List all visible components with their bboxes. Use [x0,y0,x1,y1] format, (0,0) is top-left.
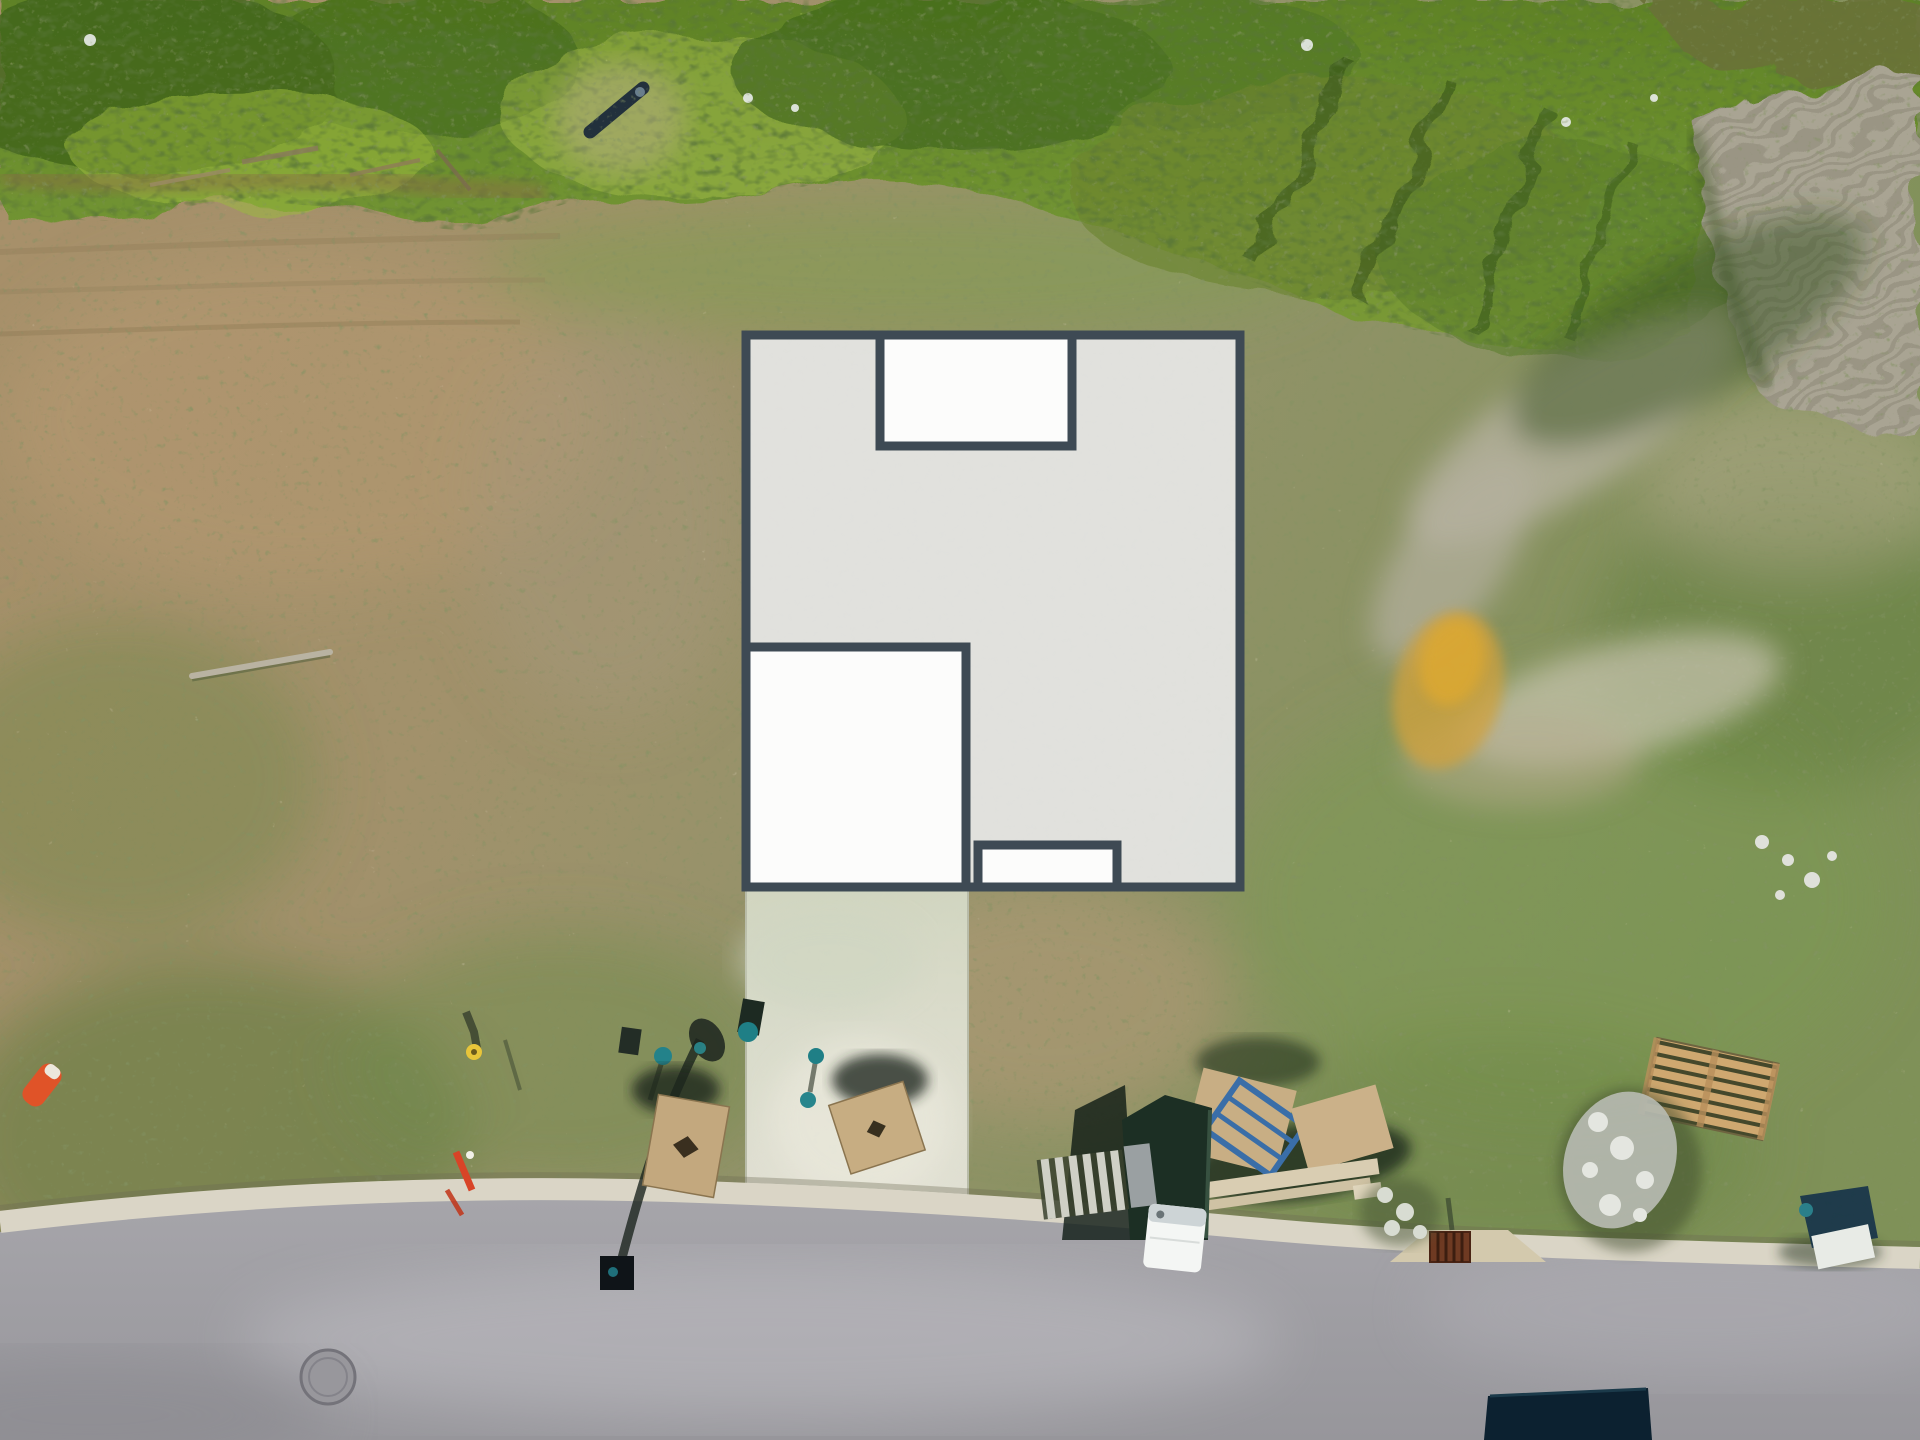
manhole-cover [301,1350,355,1404]
bottom-stoop [978,845,1117,887]
toilet-body [1143,1203,1207,1273]
left-room [746,647,966,887]
dark-object [1484,1388,1652,1440]
aerial-photo [0,0,1920,1440]
driveway-pad [740,884,968,1226]
aerial-photo-svg [0,0,1920,1440]
building-footprint-overlay [746,335,1240,887]
top-room [880,335,1072,446]
